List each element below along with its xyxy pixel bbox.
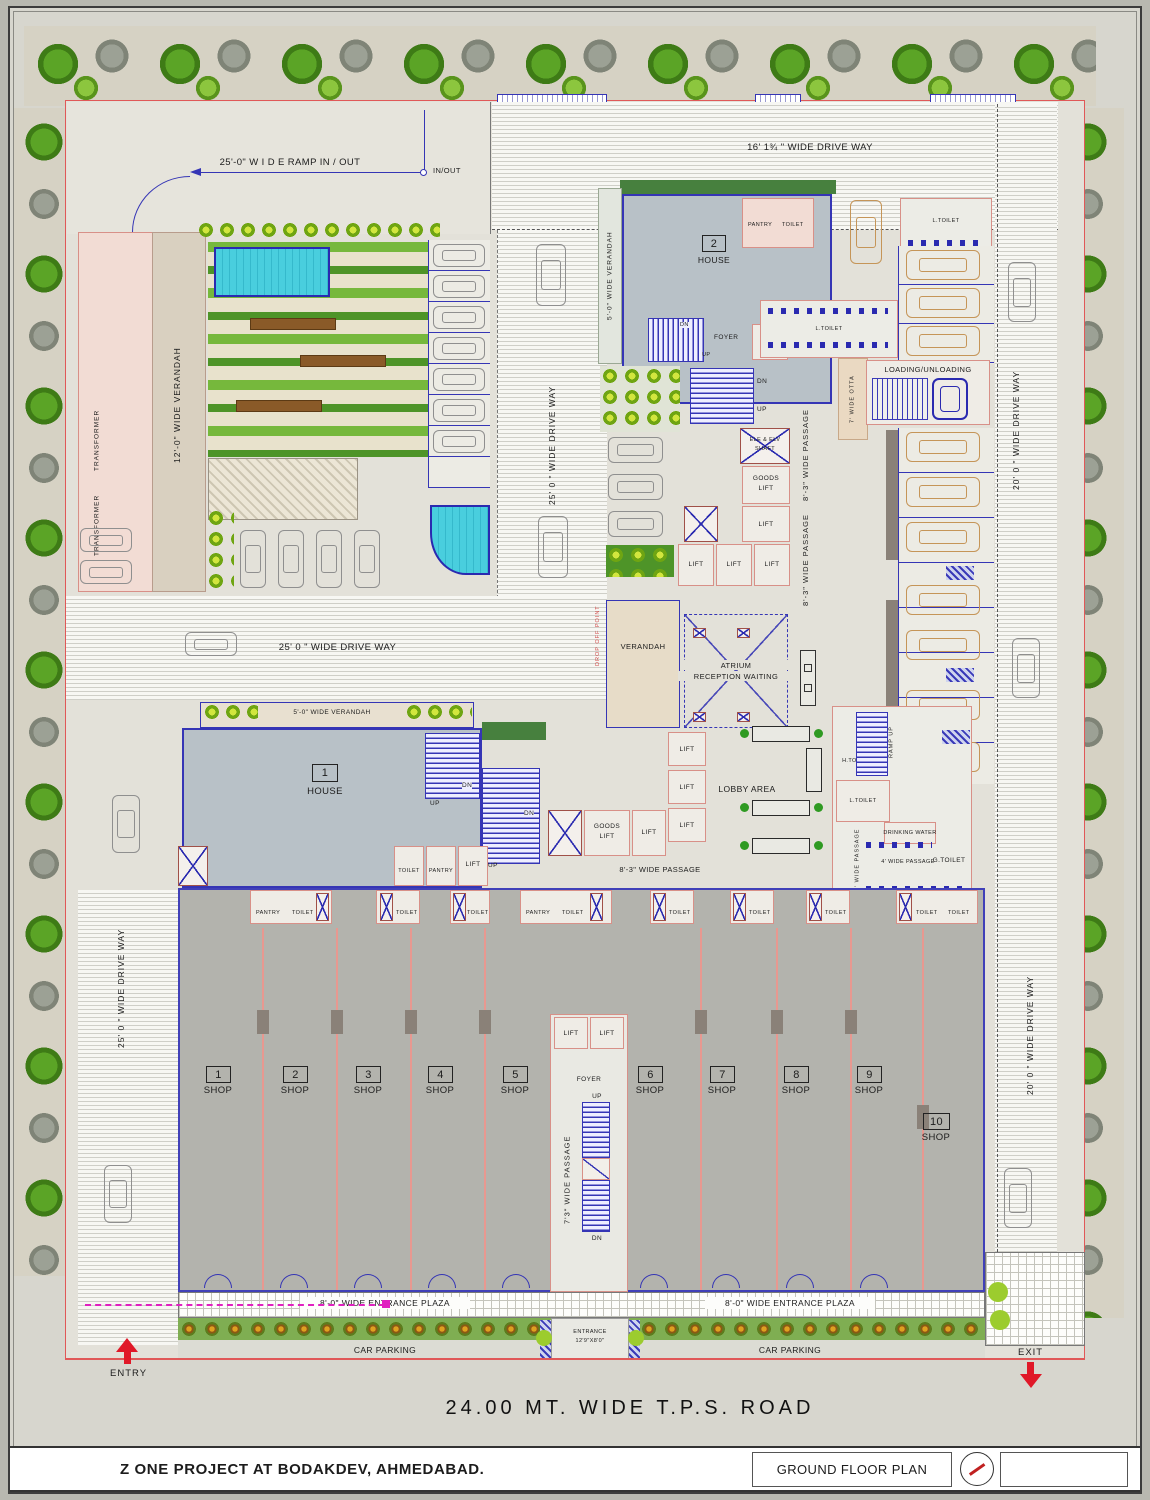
- passage-73-label: 7'3" WIDE PASSAGE: [560, 1124, 574, 1236]
- plant-icon: [628, 1330, 644, 1346]
- drop-off-label: DROP OFF POINT: [592, 598, 604, 674]
- car-icon: [906, 522, 980, 552]
- shop-label: SHOP: [198, 1085, 238, 1096]
- shop-partition: [776, 928, 778, 1290]
- ramp-up-label: RAMP UP: [886, 714, 897, 770]
- car-icon: [185, 632, 237, 656]
- duct-shaft-icon: [733, 893, 746, 921]
- loading-dock-inner-icon: [940, 386, 960, 412]
- car-parking-label: CAR PARKING: [725, 1344, 855, 1356]
- car-icon: [608, 474, 663, 500]
- l-toilet-label: L.TOILET: [760, 324, 898, 333]
- desk-icon: [693, 628, 706, 638]
- shrub-bed: [206, 508, 234, 594]
- foyer-label: FOYER: [556, 1074, 622, 1084]
- toilet-fixtures-icon: [768, 308, 888, 314]
- toilet-fixtures-icon: [866, 842, 932, 848]
- shop-number: 1: [206, 1066, 231, 1083]
- in-out-label: IN/OUT: [433, 166, 461, 175]
- plant-icon: [740, 803, 749, 812]
- car-icon: [104, 1165, 132, 1223]
- car-icon: [316, 530, 342, 588]
- toilet-label: TOILET: [562, 910, 584, 916]
- stairs: [582, 1102, 610, 1158]
- lift-label: LIFT: [668, 819, 706, 831]
- ramp-dim-line: [198, 172, 424, 173]
- lift-label: LIFT: [458, 858, 488, 870]
- g-toilet-label: G.TOILET: [928, 856, 970, 865]
- core-wall: [886, 430, 898, 560]
- shop-label: SHOP: [702, 1085, 742, 1096]
- l-toilet-label: L.TOILET: [900, 216, 992, 225]
- shop-label: SHOP: [630, 1085, 670, 1096]
- car-icon: [433, 306, 485, 329]
- duct-shaft-icon: [178, 846, 208, 886]
- house2-number: 2: [702, 235, 726, 252]
- entrance-plaza-label: 8'-0" WIDE ENTRANCE PLAZA: [705, 1297, 875, 1309]
- pilaster: [479, 1010, 491, 1034]
- driveway-20-bottom-label: 20' 0 " WIDE DRIVE WAY: [1022, 945, 1038, 1125]
- car-icon: [536, 244, 566, 306]
- toilet-label: TOILET: [825, 910, 847, 916]
- toilet-label: TOILET: [948, 910, 970, 916]
- shop-number: 3: [356, 1066, 381, 1083]
- entrance-label-line1: ENTRANCE: [551, 1328, 629, 1336]
- atrium-label-line1: ATRIUM: [684, 660, 788, 670]
- lift-label: LIFT: [632, 826, 666, 838]
- lobby-label: LOBBY AREA: [712, 783, 782, 795]
- pantry-label: PANTRY: [256, 910, 280, 916]
- pantry-label: PANTRY: [748, 222, 772, 228]
- atrium-label-line2: RECEPTION WAITING: [678, 671, 794, 681]
- lift-label: LIFT: [590, 1028, 624, 1039]
- road-label: 24.00 MT. WIDE T.P.S. ROAD: [380, 1396, 880, 1420]
- ramp-label: 25'-0" W I D E RAMP IN / OUT: [200, 155, 380, 169]
- car-icon: [354, 530, 380, 588]
- car-icon: [80, 560, 132, 584]
- duct-shaft-icon: [653, 893, 666, 921]
- lift-label: LIFT: [742, 518, 790, 530]
- shop-label: SHOP: [420, 1085, 460, 1096]
- reception-chair-icon: [804, 684, 812, 692]
- house1-number: 1: [312, 764, 338, 782]
- project-title: Z ONE PROJECT AT BODAKDEV, AHMEDABAD.: [120, 1461, 484, 1478]
- toilet-label: TOILET: [782, 222, 804, 228]
- shop-label: SHOP: [776, 1085, 816, 1096]
- plant-icon: [536, 1330, 552, 1346]
- lift-label: LIFT: [668, 743, 706, 755]
- exit-arrow-icon: [1020, 1374, 1042, 1388]
- house2-verandah-label: 5'-0" WIDE VERANDAH: [602, 196, 618, 356]
- shop-label: SHOP: [275, 1085, 315, 1096]
- pilaster: [331, 1010, 343, 1034]
- stairs: [582, 1180, 610, 1232]
- stairs: [690, 368, 754, 424]
- dn-label: DN: [524, 810, 534, 817]
- desk-icon: [737, 628, 750, 638]
- car-icon: [1012, 638, 1040, 698]
- hedge-bed: [606, 545, 674, 577]
- car-icon: [906, 477, 980, 507]
- passage-4-v-label: 4' WIDE PASSAGE: [852, 824, 863, 896]
- toilet-label: TOILET: [396, 910, 418, 916]
- shop-number: 5: [503, 1066, 528, 1083]
- pool: [214, 247, 330, 297]
- bench-icon: [300, 355, 386, 367]
- verandah-12-label: 12'-0" WIDE VERANDAH: [168, 310, 186, 500]
- shop-label: SHOP: [495, 1085, 535, 1096]
- reception-chair-icon: [804, 664, 812, 672]
- planter-grid: [600, 366, 680, 432]
- shop-number: 6: [638, 1066, 663, 1083]
- sofa-icon: [752, 726, 810, 742]
- dn-label: DN: [586, 1234, 608, 1243]
- car-icon: [906, 288, 980, 318]
- hedge-row: [202, 702, 258, 724]
- transformer-label: TRANSFORMER: [90, 485, 104, 565]
- exit-label: EXIT: [1018, 1347, 1043, 1358]
- loading-ramp-icon: [872, 378, 928, 420]
- driveway-20-top-label: 20' 0 " WIDE DRIVE WAY: [1008, 340, 1024, 520]
- car-icon: [278, 530, 304, 588]
- toilet-label: TOILET: [669, 910, 691, 916]
- car-icon: [906, 630, 980, 660]
- ramp-node-icon: [420, 169, 427, 176]
- toilet-label: TOILET: [749, 910, 771, 916]
- drawing-title: GROUND FLOOR PLAN: [752, 1452, 952, 1487]
- stairs-landing: [582, 1158, 610, 1180]
- pantry-label: PANTRY: [426, 866, 456, 876]
- entry-path-line: [85, 1304, 385, 1306]
- house1-label: HOUSE: [300, 785, 350, 797]
- duct-shaft-icon: [809, 893, 822, 921]
- handicap-bay-icon: [942, 730, 970, 744]
- tree-border-left: [14, 108, 72, 1276]
- lift-label: LIFT: [554, 1028, 588, 1039]
- car-icon: [433, 244, 485, 267]
- pilaster: [257, 1010, 269, 1034]
- plant-icon: [740, 729, 749, 738]
- foyer-label: FOYER: [714, 334, 738, 341]
- bench-icon: [236, 400, 322, 412]
- toilet-fixtures-icon: [768, 342, 888, 348]
- passage-83-label: 8'-3" WIDE PASSAGE: [798, 505, 813, 615]
- shop-number: 9: [857, 1066, 882, 1083]
- car-icon: [433, 430, 485, 453]
- sofa-icon: [752, 800, 810, 816]
- loading-label: LOADING/UNLOADING: [866, 364, 990, 374]
- shop-partition: [410, 928, 412, 1290]
- up-label: UP: [702, 352, 710, 358]
- duct-shaft-icon: [316, 893, 329, 921]
- pilaster: [405, 1010, 417, 1034]
- floor-plan-sheet: 25'-0" W I D E RAMP IN / OUT IN/OUT 16' …: [0, 0, 1150, 1500]
- car-icon: [538, 516, 568, 578]
- dn-label: DN: [680, 322, 689, 328]
- toilet-label: TOILET: [916, 910, 938, 916]
- car-icon: [1004, 1168, 1032, 1228]
- shop-number: 10: [923, 1113, 950, 1130]
- shop-partition: [700, 928, 702, 1290]
- hedge-strip: [482, 722, 546, 740]
- passage-83-h-label: 8'-3" WIDE PASSAGE: [600, 864, 720, 875]
- car-icon: [906, 250, 980, 280]
- sofa-icon: [806, 748, 822, 792]
- house2-label: HOUSE: [692, 254, 736, 265]
- shop-label: SHOP: [916, 1132, 956, 1143]
- shaft-label-line2: SHAFT: [740, 445, 790, 453]
- duct-shaft-icon: [899, 893, 912, 921]
- lift-label: LIFT: [754, 558, 790, 570]
- goods-lift-label-line2: LIFT: [584, 832, 630, 841]
- pilaster: [771, 1010, 783, 1034]
- verandah-label: VERANDAH: [606, 640, 680, 652]
- passage-83-label: 8'-3" WIDE PASSAGE: [798, 400, 813, 510]
- hedge-row: [404, 702, 472, 724]
- car-icon: [112, 795, 140, 853]
- desk-icon: [737, 712, 750, 722]
- up-label: UP: [430, 800, 440, 807]
- plant-icon: [814, 803, 823, 812]
- bench-icon: [250, 318, 336, 330]
- car-icon: [906, 585, 980, 615]
- duct-shaft-icon: [380, 893, 393, 921]
- car-icon: [1008, 262, 1036, 322]
- car-parking-label: CAR PARKING: [320, 1344, 450, 1356]
- shop-number: 7: [710, 1066, 735, 1083]
- lift-label: LIFT: [678, 558, 714, 570]
- shop-label: SHOP: [849, 1085, 889, 1096]
- electrical-duct-icon: [548, 810, 582, 856]
- lift-label: LIFT: [716, 558, 752, 570]
- ramp-up-icon: [856, 712, 888, 776]
- entry-path-dot: [382, 1300, 390, 1308]
- duct-shaft-icon: [590, 893, 603, 921]
- entrance-label-line2: 12'9"X8'0": [551, 1337, 629, 1345]
- up-label: UP: [586, 1092, 608, 1101]
- toilet-label: TOILET: [467, 910, 489, 916]
- otta-label: 7' WIDE OTTA: [846, 364, 859, 434]
- car-icon: [906, 326, 980, 356]
- car-icon: [433, 337, 485, 360]
- dn-label: DN: [462, 782, 472, 789]
- driveway-16-label: 16' 1¾ " WIDE DRIVE WAY: [720, 140, 900, 154]
- entry-arrow-stem: [124, 1350, 131, 1364]
- goods-lift-label-line1: GOODS: [584, 822, 630, 831]
- ramp-arrowhead-icon: [190, 168, 201, 176]
- dn-label: DN: [757, 378, 767, 385]
- goods-lift-label-line2: LIFT: [742, 484, 790, 493]
- shop-partition: [262, 928, 264, 1290]
- site-bottom-line: [65, 1358, 1085, 1360]
- shop-label: SHOP: [348, 1085, 388, 1096]
- stairs: [425, 733, 480, 799]
- title-blank-box: [1000, 1452, 1128, 1487]
- drinking-water-label: DRINKING WATER: [884, 829, 936, 837]
- entry-label: ENTRY: [110, 1368, 147, 1379]
- pilaster: [695, 1010, 707, 1034]
- duct-shaft-icon: [453, 893, 466, 921]
- driveway-25-mid-label: 25' 0 " WIDE DRIVE WAY: [270, 640, 405, 654]
- verandah-room: [606, 600, 680, 728]
- pilaster: [845, 1010, 857, 1034]
- shop-partition: [484, 928, 486, 1290]
- car-icon: [906, 432, 980, 462]
- plant-icon: [740, 841, 749, 850]
- car-icon: [240, 530, 266, 588]
- l-toilet-label: L.TOILET: [836, 796, 890, 805]
- stairs: [648, 318, 704, 362]
- hedge-row: [196, 220, 440, 242]
- reception-desk-icon: [800, 650, 816, 706]
- car-icon: [80, 528, 132, 552]
- plant-icon: [990, 1310, 1010, 1330]
- car-icon: [850, 200, 882, 264]
- shop-number: 4: [428, 1066, 453, 1083]
- up-label: UP: [488, 862, 498, 869]
- car-icon: [608, 437, 663, 463]
- car-icon: [608, 511, 663, 537]
- handicap-bay-icon: [946, 668, 974, 682]
- up-label: UP: [757, 406, 767, 413]
- ramp-vert-line: [424, 110, 425, 173]
- driveway-right-dash: [997, 104, 998, 1302]
- driveway-25-left-label: 25' 0 " WIDE DRIVE WAY: [113, 918, 129, 1058]
- duct-shaft-icon: [684, 506, 718, 542]
- plant-icon: [814, 841, 823, 850]
- car-icon: [433, 275, 485, 298]
- handicap-bay-icon: [946, 566, 974, 580]
- shop-number: 2: [283, 1066, 308, 1083]
- toilet-label: TOILET: [394, 866, 424, 876]
- car-icon: [433, 399, 485, 422]
- house1-verandah-label: 5'-0" WIDE VERANDAH: [262, 706, 402, 718]
- lift-label: LIFT: [668, 781, 706, 793]
- shop-partition: [850, 928, 852, 1290]
- plant-icon: [988, 1282, 1008, 1302]
- goods-lift-label-line1: GOODS: [742, 474, 790, 483]
- toilet-label: TOILET: [292, 910, 314, 916]
- desk-icon: [693, 712, 706, 722]
- pantry-label: PANTRY: [526, 910, 550, 916]
- shop-number: 8: [784, 1066, 809, 1083]
- sofa-icon: [752, 838, 810, 854]
- shaft-label-line1: ELE & ELV: [740, 436, 790, 444]
- car-icon: [433, 368, 485, 391]
- house2-green-strip: [620, 180, 836, 194]
- plant-icon: [814, 729, 823, 738]
- shop-partition: [336, 928, 338, 1290]
- transformer-label: TRANSFORMER: [90, 400, 104, 480]
